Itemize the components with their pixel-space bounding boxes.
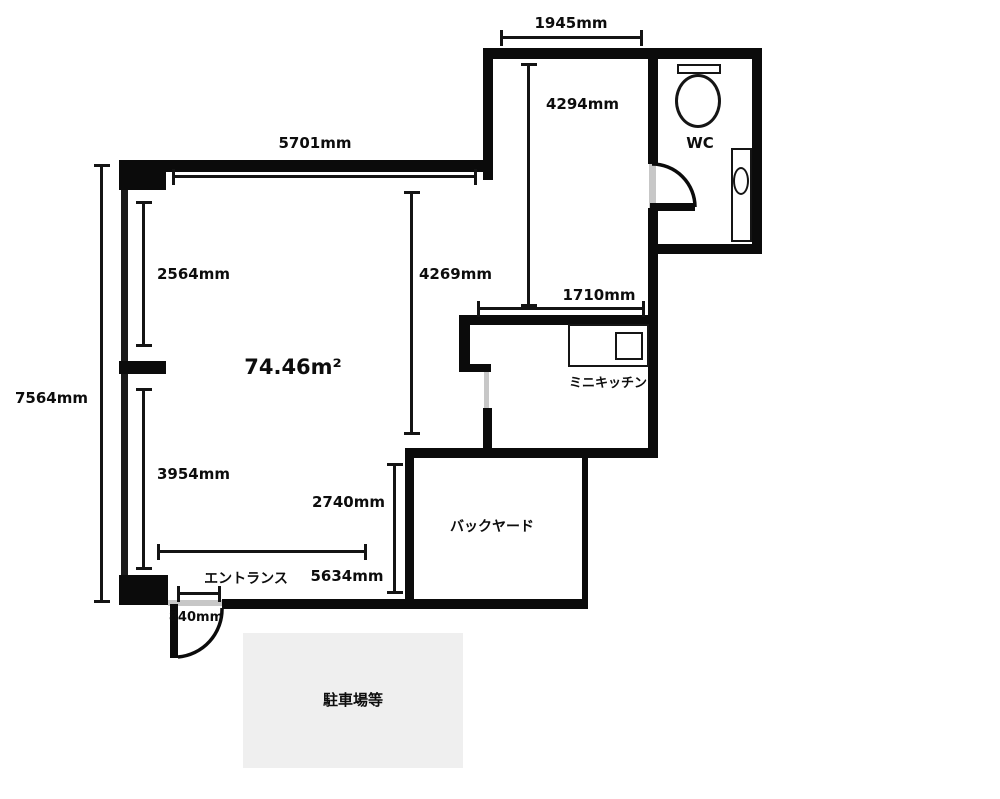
- room-label-backyard: バックヤード: [450, 520, 534, 534]
- dim-label-entrance-width: 840mm: [169, 611, 223, 624]
- dim-label-top-room-depth: 4294mm: [546, 97, 619, 112]
- dim-label-main-room-depth: 4269mm: [419, 267, 492, 282]
- wall-top-room-left: [483, 48, 493, 180]
- dim-line-main-room-depth: [410, 191, 413, 435]
- wall-backyard-right: [582, 455, 588, 605]
- dim-label-window-lower: 3954mm: [157, 467, 230, 482]
- wall-top: [483, 48, 762, 59]
- dim-line-kitchen-width: [477, 307, 645, 310]
- wall-pillar-mid-left: [119, 361, 166, 374]
- dim-label-backyard-depth: 2740mm: [312, 495, 385, 510]
- room-label-entrance: エントランス: [204, 572, 288, 586]
- wc-door-leaf: [650, 203, 695, 211]
- corridor-opening: [484, 372, 489, 408]
- wc-door-arc: [652, 164, 695, 207]
- dim-label-overall-depth: 7564mm: [15, 391, 88, 406]
- area-label: 74.46m²: [244, 357, 342, 378]
- window-left-upper: [121, 190, 128, 361]
- dim-line-overall-depth: [100, 164, 103, 603]
- kitchen-sink-icon: [615, 332, 643, 360]
- wall-wc-left-upper: [648, 48, 658, 164]
- floor-plan: 1945mm 4294mm 5701mm 2564mm 4269mm 7564m…: [0, 0, 1000, 799]
- wall-wc-right: [752, 48, 762, 253]
- dim-line-window-lower: [142, 388, 145, 570]
- dim-label-main-room-width: 5701mm: [278, 136, 351, 151]
- dim-label-window-upper: 2564mm: [157, 267, 230, 282]
- window-left-lower: [121, 374, 128, 575]
- dim-line-entrance-width: [177, 592, 221, 595]
- wall-pillar-bottom-left: [119, 575, 168, 605]
- wall-wc-bottom: [655, 244, 762, 254]
- washbasin-icon: [731, 148, 752, 242]
- dim-label-top-room-width: 1945mm: [534, 16, 607, 31]
- wall-pillar-top-left: [119, 160, 166, 190]
- room-label-mini-kitchen: ミニキッチン: [569, 377, 647, 390]
- room-label-wc: WC: [686, 136, 714, 151]
- dim-line-top-room-depth: [527, 63, 530, 307]
- toilet-bowl-icon: [675, 74, 721, 128]
- room-label-parking: 駐車場等: [323, 693, 383, 708]
- wall-backyard-top: [405, 448, 658, 458]
- dim-label-kitchen-width: 1710mm: [562, 288, 635, 303]
- toilet-tank-icon: [677, 64, 721, 74]
- wall-kitchen-jog: [459, 364, 491, 372]
- dim-line-main-room-width: [172, 175, 477, 178]
- wall-backyard-left: [405, 448, 414, 604]
- dim-line-top-room-width: [500, 36, 643, 39]
- wall-right-lower: [648, 208, 658, 458]
- dim-line-window-upper: [142, 201, 145, 347]
- dim-line-backyard-depth: [393, 463, 396, 594]
- washbasin-bowl-icon: [733, 167, 749, 195]
- dim-label-main-bottom-width: 5634mm: [310, 569, 383, 584]
- wc-door-opening: [649, 164, 656, 208]
- door-arcs-overlay: [0, 0, 1000, 799]
- wall-main-top: [119, 160, 493, 172]
- dim-line-main-bottom-width: [157, 550, 367, 553]
